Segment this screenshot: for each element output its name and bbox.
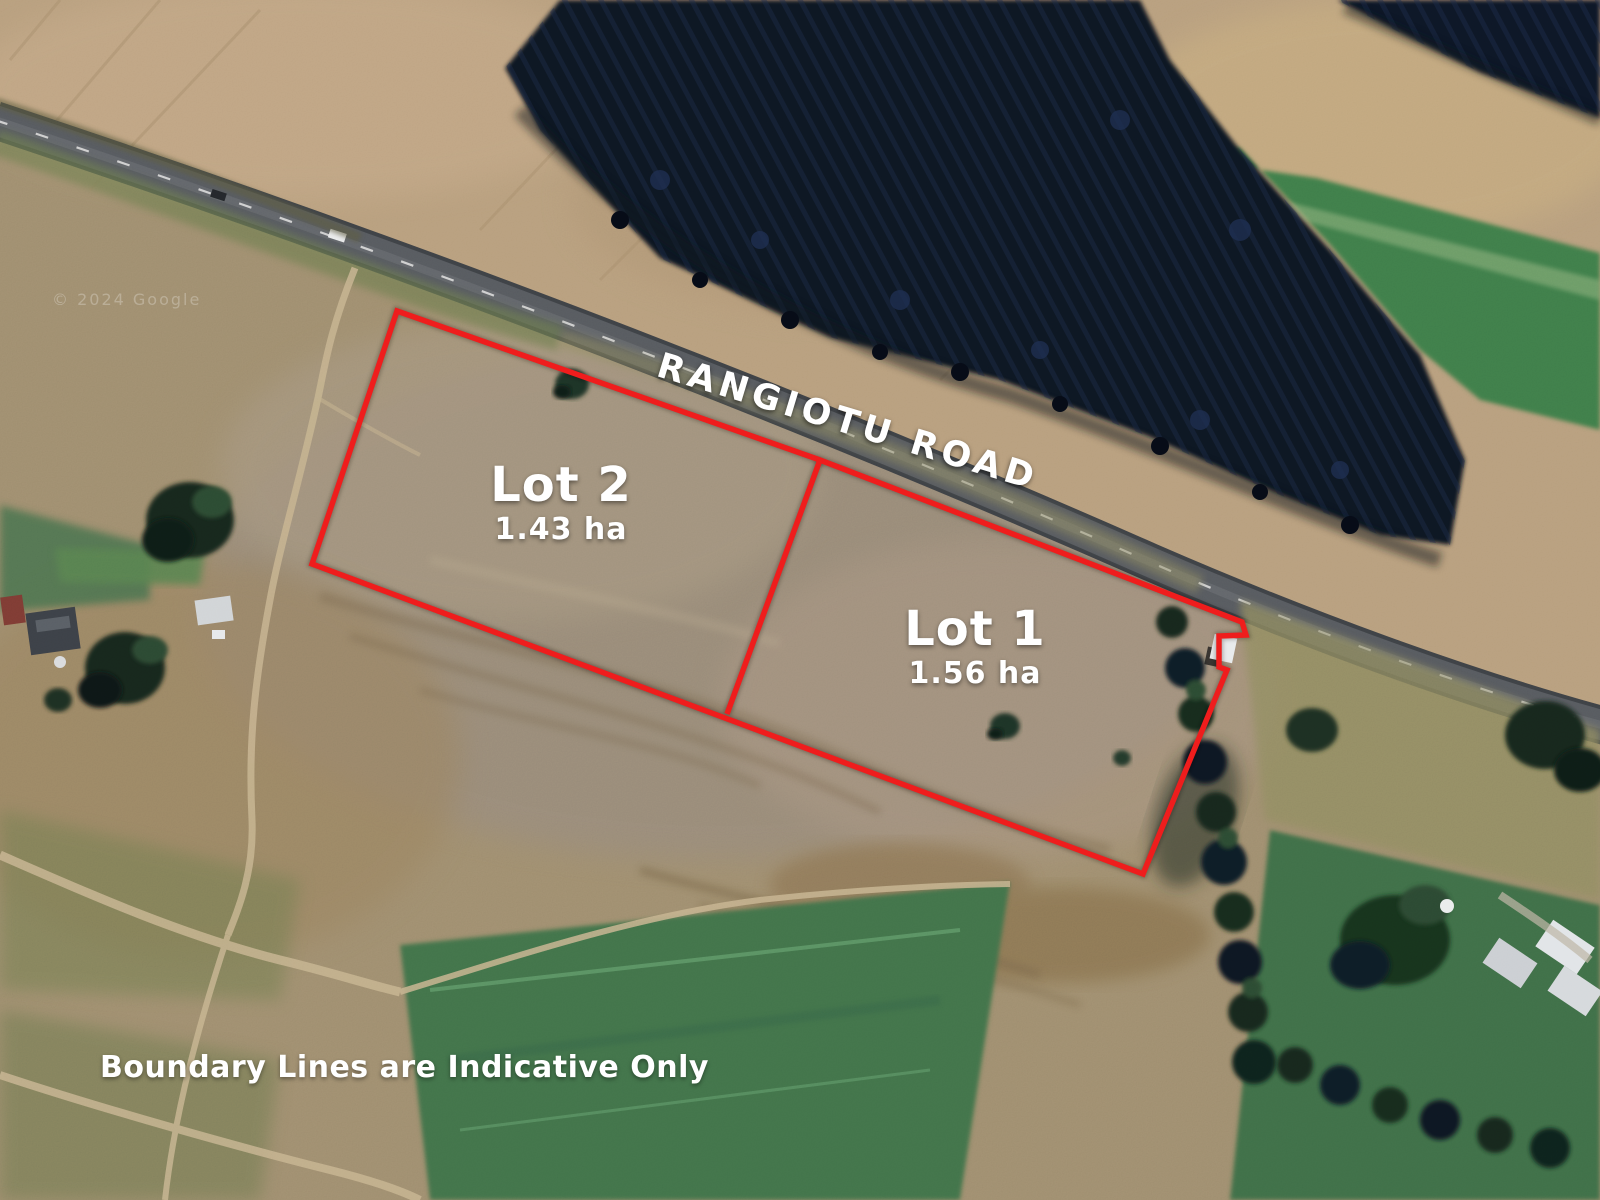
aerial-lot-map: © 2024 Google RANGIOTU ROAD Lot 2 1.43 h… <box>0 0 1600 1200</box>
satellite-imagery <box>0 0 1600 1200</box>
lot1-label: Lot 1 1.56 ha <box>855 604 1095 690</box>
photo-grain <box>0 0 1600 1200</box>
lot2-area: 1.43 ha <box>441 514 681 546</box>
lot2-name: Lot 2 <box>441 460 681 510</box>
lot1-name: Lot 1 <box>855 604 1095 654</box>
lot1-area: 1.56 ha <box>855 658 1095 690</box>
imagery-watermark: © 2024 Google <box>52 290 201 309</box>
boundary-disclaimer: Boundary Lines are Indicative Only <box>100 1050 709 1085</box>
lot2-label: Lot 2 1.43 ha <box>441 460 681 546</box>
